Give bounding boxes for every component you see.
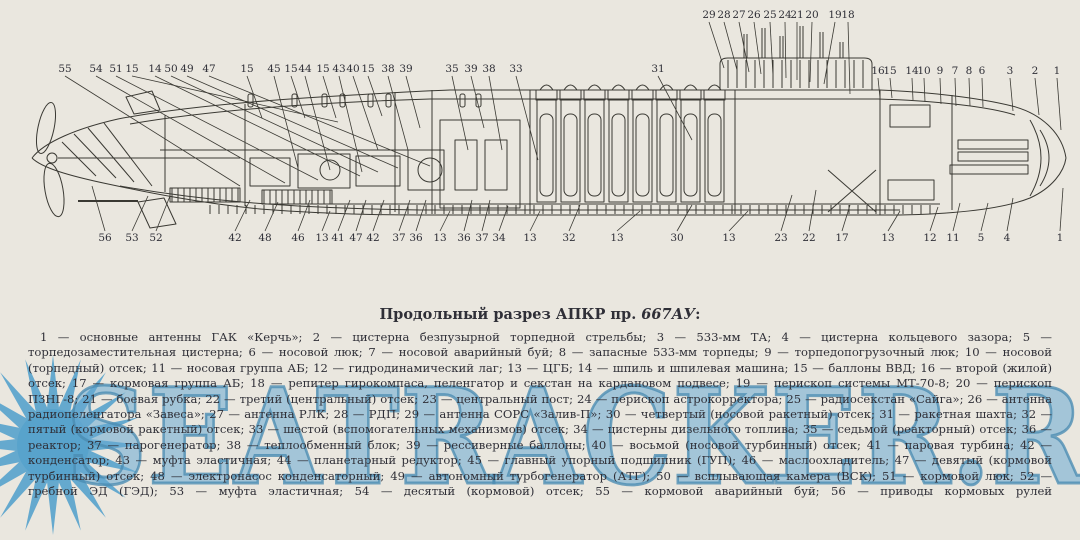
legend-item: 24 — перископ астрокорректора — [577, 392, 779, 406]
callout-leader-line — [940, 78, 941, 104]
callout-number: 15 — [883, 65, 896, 77]
callout-number: 33 — [509, 63, 522, 75]
callout-leader-line — [982, 78, 983, 107]
callout-number: 21 — [790, 9, 803, 21]
legend-item: 44 — планетарный редуктор — [277, 453, 458, 467]
legend-item: 15 — баллоны ВВД — [793, 361, 912, 375]
legend-item: 25 — радиосекстан «Сайга» — [786, 392, 959, 406]
callout-leader-line — [878, 78, 880, 98]
callout-number: 47 — [202, 63, 215, 75]
callout-number: 15 — [284, 63, 297, 75]
legend-title: Продольный разрез АПКР пр. 667АУ: — [28, 306, 1052, 323]
callout-number: 15 — [361, 63, 374, 75]
legend-item: 41 — паровая турбина — [867, 438, 1011, 452]
callout-number: 13 — [523, 232, 536, 244]
callout-leader-line — [274, 76, 298, 168]
callout-leader-line — [617, 211, 640, 231]
callout-leader-line — [356, 200, 366, 231]
callout-number: 40 — [346, 63, 359, 75]
callout-number: 22 — [802, 232, 815, 244]
callout-leader-line — [953, 203, 960, 231]
legend-item: 22 — третий (центральный) отсек — [205, 392, 414, 406]
reactor-vessel — [455, 140, 477, 190]
legend-item: 7 — носовой аварийный буй — [368, 345, 549, 359]
callout-number: 41 — [331, 232, 344, 244]
legend-item: 37 — парогенератор — [87, 438, 217, 452]
callout-number: 18 — [841, 9, 854, 21]
callout-leader-line — [440, 211, 450, 231]
callout-number: 54 — [89, 63, 103, 75]
callout-leader-line — [824, 22, 835, 84]
reactor-compartment — [440, 120, 520, 208]
missile — [708, 114, 721, 196]
air-flask — [322, 94, 327, 107]
callout-number: 3 — [1007, 65, 1014, 77]
air-flask — [460, 94, 465, 107]
callout-number: 39 — [399, 63, 412, 75]
callout-number: 50 — [164, 63, 177, 75]
callout-number: 7 — [952, 65, 959, 77]
sail-ribs — [728, 60, 863, 88]
submarine-diagram: 5554511514504947154515441543401538393539… — [0, 0, 1080, 270]
callout-leader-line — [924, 78, 925, 102]
missile — [636, 114, 649, 196]
callout-leader-line — [658, 76, 692, 140]
legend-item: 49 — автономный турбогенератор (АТГ) — [390, 469, 646, 483]
callout-number: 12 — [923, 232, 936, 244]
callout-leader-line — [298, 200, 310, 231]
callout-number: 11 — [946, 232, 959, 244]
silo-dome — [636, 85, 649, 90]
callout-number: 4 — [1004, 232, 1011, 244]
legend-item: 8 — запасные 533-мм торпеды — [559, 345, 755, 359]
missile — [684, 114, 697, 196]
callout-number: 13 — [610, 232, 623, 244]
legend-item: 40 — восьмой (носовой турбинный) отсек — [591, 438, 857, 452]
callout-leader-line — [770, 22, 773, 76]
callout-leader-line — [155, 76, 360, 176]
bow-equipment-lower — [888, 180, 934, 200]
callout-number: 51 — [109, 63, 122, 75]
legend-item: 2 — цистерна безпузырной торпедной стрел… — [313, 330, 643, 344]
legend-item: 55 — кормовой аварийный буй — [595, 484, 815, 498]
legend-item: 33 — шестой (вспомогательных механизмов)… — [249, 422, 565, 436]
legend-item: 1 — основные антенны ГАК «Керчь» — [40, 330, 299, 344]
callout-number: 49 — [180, 63, 193, 75]
callout-leader-line — [1007, 198, 1013, 231]
silo-dome — [540, 85, 553, 90]
legend-item: 48 — электронасос конденсаторный — [150, 469, 380, 483]
callout-leader-line — [981, 203, 988, 231]
legend-item: 54 — десятый (кормовой) отсек — [355, 484, 580, 498]
callout-number: 32 — [562, 232, 575, 244]
legend-item: 30 — четвертый (носовой ракетный) отсек — [606, 407, 871, 421]
bow-equipment-upper — [890, 105, 930, 127]
callout-number: 30 — [670, 232, 683, 244]
missile — [564, 114, 577, 196]
callout-leader-line — [338, 200, 350, 231]
callout-leader-line — [452, 76, 468, 150]
legend-item: 21 — боевая рубка — [82, 392, 197, 406]
air-flask — [368, 94, 373, 107]
title-suffix: : — [695, 306, 700, 323]
legend-item: 28 — РДП — [334, 407, 396, 421]
callout-number: 37 — [475, 232, 488, 244]
periscope-masts — [744, 26, 843, 58]
torpedo-tube-1 — [958, 140, 1028, 149]
callout-leader-line — [1035, 78, 1039, 115]
callout-number: 52 — [149, 232, 162, 244]
callout-number: 45 — [267, 63, 280, 75]
legend-item: 29 — антенна СОРС «Залив-П» — [404, 407, 597, 421]
callout-leader-line — [96, 76, 285, 183]
callout-number: 46 — [291, 232, 305, 244]
callout-number: 13 — [315, 232, 328, 244]
legend-item: 13 — ЦГБ — [507, 361, 569, 375]
callout-leader-line — [955, 78, 956, 106]
callout-number: 31 — [651, 63, 664, 75]
callout-number: 15 — [316, 63, 329, 75]
legend: Продольный разрез АПКР пр. 667АУ: 1 — ос… — [28, 306, 1052, 499]
legend-item: 17 — кормовая группа АБ — [72, 376, 240, 390]
callout-leader-line — [373, 200, 384, 231]
callout-number: 38 — [482, 63, 495, 75]
coupling-circle — [418, 158, 442, 182]
callout-leader-line — [388, 76, 408, 150]
callout-leader-line — [235, 200, 250, 231]
sonar-arcs — [1030, 120, 1049, 196]
missile-silos — [536, 85, 725, 202]
air-flask-bottles — [248, 94, 481, 107]
missile — [540, 114, 553, 196]
callout-leader-line — [569, 205, 580, 231]
propeller-blade-upper — [33, 101, 59, 155]
callout-leader-line — [92, 186, 105, 231]
callout-number: 15 — [240, 63, 253, 75]
propeller-hub — [47, 153, 57, 163]
callout-number: 36 — [409, 232, 423, 244]
legend-item: 50 — всплывающая камера (ВСК) — [656, 469, 872, 483]
callout-number: 42 — [228, 232, 241, 244]
legend-item: 45 — главный упорный подшипник (ГУП) — [467, 453, 732, 467]
legend-item: 12 — гидродинамический лаг — [313, 361, 499, 375]
battery-cell-ticks — [172, 188, 330, 204]
callout-leader-line — [709, 22, 724, 68]
missile — [660, 114, 673, 196]
legend-item: 43 — муфта эластичная — [115, 453, 267, 467]
callout-number: 55 — [58, 63, 71, 75]
callout-number: 6 — [979, 65, 986, 77]
callout-leader-line — [322, 211, 330, 231]
callout-leader-line — [677, 205, 692, 231]
silo-dome — [564, 85, 577, 90]
callout-number: 27 — [732, 9, 745, 21]
legend-text: 1 — основные антенны ГАК «Керчь»; 2 — ци… — [28, 330, 1052, 499]
legend-item: 9 — торпедопогрузочный люк — [764, 345, 955, 359]
callout-number: 25 — [763, 9, 776, 21]
missile — [612, 114, 625, 196]
callout-number: 23 — [774, 232, 787, 244]
callout-number: 13 — [722, 232, 735, 244]
callout-leader-line — [530, 211, 540, 231]
callout-leader-line — [489, 76, 502, 150]
callout-number: 13 — [881, 232, 894, 244]
callout-number: 44 — [298, 63, 312, 75]
callout-number: 37 — [392, 232, 405, 244]
legend-item: 51 — кормовой люк — [882, 469, 1010, 483]
callout-leader-line — [724, 22, 737, 70]
callout-number: 1 — [1057, 232, 1064, 244]
title-project-number: 667АУ — [641, 306, 695, 323]
callout-number: 17 — [835, 232, 848, 244]
callout-number: 36 — [457, 232, 471, 244]
missile — [588, 114, 601, 196]
bulkheads — [165, 90, 952, 215]
callout-number: 48 — [258, 232, 271, 244]
turbogenerator-box — [408, 150, 444, 190]
silo-dome — [684, 85, 697, 90]
steam-generator — [485, 140, 507, 190]
callout-leader-line — [890, 78, 892, 98]
callout-number: 26 — [747, 9, 761, 21]
callout-leader-line — [353, 76, 378, 150]
callout-number: 14 — [148, 63, 162, 75]
hull-bottom-outline — [32, 158, 1066, 215]
callout-leader-line — [912, 78, 913, 100]
silo-dome — [588, 85, 601, 90]
callout-number: 38 — [381, 63, 394, 75]
callout-leader-line — [781, 195, 792, 231]
callout-number: 5 — [978, 232, 985, 244]
title-prefix: Продольный разрез АПКР пр. — [379, 306, 641, 323]
callout-leader-line — [305, 76, 330, 170]
callout-leader-line — [1057, 78, 1061, 130]
legend-item: 18 — репитер гирокомпаса, пеленгатор и с… — [250, 376, 726, 390]
callout-number: 43 — [332, 63, 345, 75]
callout-leader-line — [842, 205, 850, 231]
callout-leader-line — [265, 202, 278, 231]
callout-leader-line — [809, 190, 816, 231]
turbine-box — [298, 154, 350, 188]
air-flask — [248, 94, 253, 107]
callout-leader-line — [810, 22, 812, 82]
legend-item: 23 — центральный пост — [422, 392, 569, 406]
silo-dome — [708, 85, 721, 90]
callout-number: 39 — [464, 63, 477, 75]
callout-leader-line — [187, 76, 398, 168]
callout-number: 2 — [1032, 65, 1039, 77]
callout-number: 19 — [828, 9, 841, 21]
callout-leader-line — [1060, 188, 1063, 231]
legend-item: 6 — носовой люк — [249, 345, 359, 359]
torpedo-tube-2 — [958, 152, 1028, 161]
legend-item: 27 — антенна РЛК — [209, 407, 325, 421]
callout-leader-line — [406, 76, 420, 128]
callout-number: 8 — [966, 65, 973, 77]
legend-item: 38 — теплообменный блок — [226, 438, 396, 452]
callout-leader-line — [785, 22, 786, 78]
callout-leader-line — [969, 78, 970, 106]
ballast-cross-brace — [828, 170, 876, 212]
callout-leader-line — [516, 76, 538, 160]
callout-number: 9 — [937, 65, 944, 77]
callout-leader-line — [368, 76, 382, 116]
callout-leader-line — [209, 76, 430, 166]
legend-item: 56 — приводы кормовых рулей — [831, 484, 1052, 498]
legend-item: 31 — ракетная шахта — [879, 407, 1013, 421]
callout-number: 15 — [125, 63, 138, 75]
legend-item: 4 — цистерна кольцевого зазора — [782, 330, 1009, 344]
torpedo-tube-3 — [950, 165, 1028, 174]
battery-group-fwd — [262, 190, 332, 204]
pressure-hull-top — [130, 99, 1015, 124]
legend-item: 39 — рессиверные баллоны — [406, 438, 582, 452]
legend-item: 53 — муфта эластичная — [169, 484, 339, 498]
callout-number: 56 — [98, 232, 112, 244]
callout-number: 47 — [349, 232, 362, 244]
legend-item: 14 — шпиль и шпилевая машина — [577, 361, 784, 375]
callout-leader-line — [399, 200, 410, 231]
legend-item: 35 — седьмой (реакторный) отсек — [803, 422, 1014, 436]
callout-number: 42 — [366, 232, 379, 244]
callout-leader-line — [930, 207, 938, 231]
callout-number: 10 — [917, 65, 930, 77]
legend-item: 46 — маслоохладитель — [742, 453, 886, 467]
silo-dome — [612, 85, 625, 90]
callout-number: 29 — [702, 9, 715, 21]
legend-item: 11 — носовая группа АБ — [151, 361, 304, 375]
propeller-blade-lower — [40, 162, 67, 218]
callout-number: 35 — [445, 63, 458, 75]
callout-number: 20 — [805, 9, 818, 21]
legend-item: 3 — 533-мм ТА — [657, 330, 768, 344]
silo-dome — [660, 85, 673, 90]
callout-number: 53 — [125, 232, 138, 244]
legend-item: 34 — цистерны дизельного топлива — [573, 422, 795, 436]
legend-item: 19 — перископ системы МТ-70-8 — [736, 376, 946, 390]
gearbox-box — [356, 156, 400, 186]
callout-number: 13 — [433, 232, 446, 244]
callout-number: 28 — [717, 9, 730, 21]
page: { "colors": { "background": "#eae7df", "… — [0, 0, 1080, 516]
frame-ticks — [210, 205, 930, 214]
callout-number: 1 — [1054, 65, 1061, 77]
callout-number: 34 — [492, 232, 506, 244]
